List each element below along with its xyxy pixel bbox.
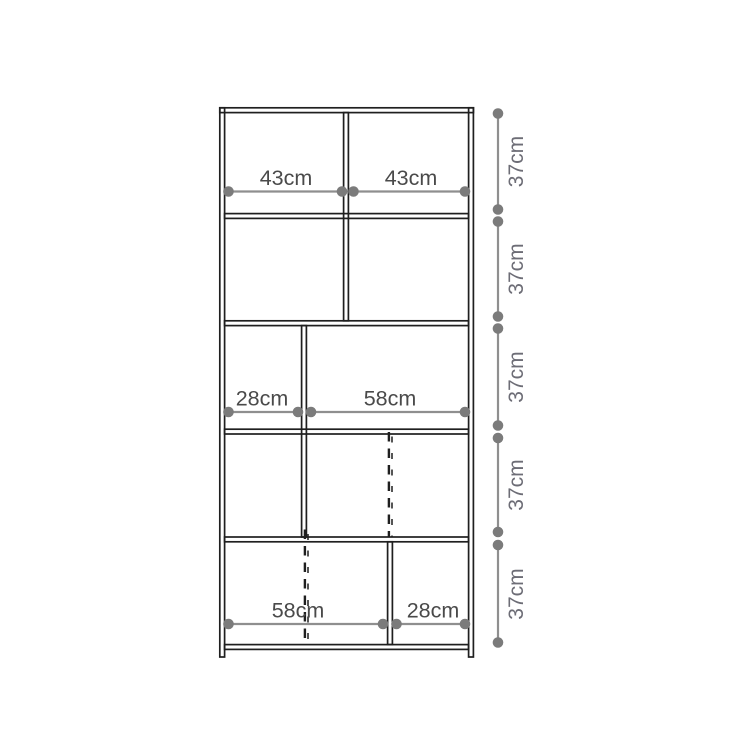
dimension-endpoint-dot (293, 407, 304, 418)
shelf-row4-row5 (225, 537, 469, 542)
dimension-endpoint-dot (460, 186, 471, 197)
vertical-divider-row-5 (388, 542, 393, 645)
dimension-endpoint-dot (493, 323, 504, 334)
furniture-dimension-diagram: 43cm 43cm 28cm 58cm 58cm 28cm (0, 0, 750, 750)
height-dim-label-seg1: 37cm (505, 136, 528, 187)
width-dimension-row1: 43cm 43cm (223, 166, 470, 197)
dimension-endpoint-dot (493, 216, 504, 227)
dimension-endpoint-dot (337, 186, 348, 197)
diagram-canvas: 43cm 43cm 28cm 58cm 58cm 28cm (0, 0, 750, 750)
width-dim-label-row3-left: 28cm (236, 387, 289, 411)
dimension-endpoint-dot (223, 619, 234, 630)
width-dim-label-row3-right: 58cm (364, 387, 417, 411)
shelf-row3-row4 (225, 429, 469, 434)
dimension-endpoint-dot (348, 186, 359, 197)
dimension-endpoint-dot (391, 619, 402, 630)
dimension-endpoint-dot (493, 311, 504, 322)
vertical-divider-rows-3-4 (302, 326, 307, 537)
dimension-endpoint-dot (378, 619, 389, 630)
width-dim-label-row5-right: 28cm (407, 599, 460, 623)
dimension-endpoint-dot (223, 407, 234, 418)
width-dim-label-row5-left: 58cm (272, 599, 325, 623)
dimension-endpoint-dot (493, 540, 504, 551)
dimension-endpoint-dot (306, 407, 317, 418)
dimension-endpoint-dot (493, 204, 504, 215)
height-dim-label-seg3: 37cm (505, 351, 528, 402)
cabinet-bottom-panel (225, 645, 469, 650)
dimension-endpoint-dot (493, 433, 504, 444)
height-dim-label-seg4: 37cm (505, 459, 528, 510)
height-dimension-column: 37cm 37cm 37cm 37cm 37cm (493, 108, 528, 648)
height-dim-label-seg2: 37cm (505, 243, 528, 294)
dimension-endpoint-dot (493, 637, 504, 648)
width-dimension-row5: 58cm 28cm (223, 599, 470, 630)
dimension-endpoint-dot (493, 420, 504, 431)
width-dim-label-row1-left: 43cm (260, 166, 313, 190)
dimension-endpoint-dot (493, 527, 504, 538)
dimension-endpoint-dot (223, 186, 234, 197)
width-dim-label-row1-right: 43cm (385, 166, 438, 190)
dimension-endpoint-dot (493, 108, 504, 119)
dimension-endpoint-dot (460, 619, 471, 630)
dimension-endpoint-dot (460, 407, 471, 418)
width-dimension-row3: 28cm 58cm (223, 387, 470, 418)
vertical-divider-rows-1-2 (344, 113, 349, 321)
shelf-row1-row2 (225, 214, 469, 219)
height-dim-label-seg5: 37cm (505, 568, 528, 619)
